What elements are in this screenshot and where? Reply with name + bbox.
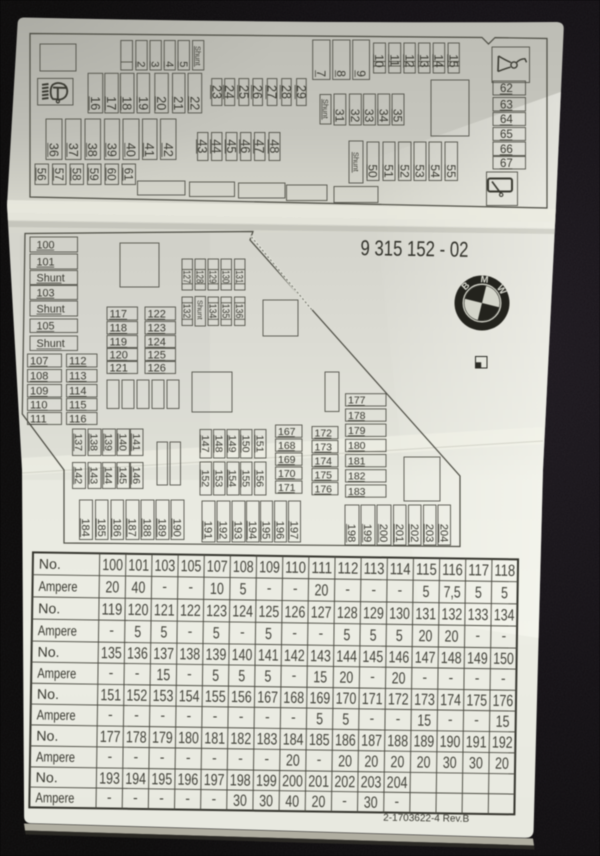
svg-text:186: 186	[335, 731, 356, 749]
svg-text:155: 155	[205, 688, 226, 706]
svg-text:101: 101	[37, 256, 55, 268]
svg-text:188: 188	[387, 732, 408, 750]
svg-text:61: 61	[122, 168, 134, 181]
svg-text:10: 10	[210, 580, 224, 598]
svg-text:118: 118	[110, 323, 128, 335]
svg-text:34: 34	[376, 109, 390, 123]
svg-text:22: 22	[187, 96, 201, 110]
svg-text:175: 175	[466, 691, 487, 709]
svg-text:20: 20	[445, 628, 459, 646]
svg-text:20: 20	[417, 753, 431, 771]
svg-text:171: 171	[278, 482, 296, 494]
svg-text:142: 142	[284, 647, 305, 665]
svg-text:124: 124	[232, 602, 253, 620]
svg-text:-: -	[109, 622, 114, 638]
svg-text:119: 119	[110, 337, 128, 349]
svg-text:-: -	[108, 706, 113, 722]
svg-text:-: -	[134, 706, 139, 722]
svg-text:176: 176	[315, 483, 333, 495]
svg-text:67: 67	[500, 158, 513, 170]
svg-text:Shunt: Shunt	[37, 272, 65, 284]
svg-text:9: 9	[354, 70, 368, 77]
svg-text:-: -	[239, 708, 244, 724]
svg-text:169: 169	[309, 689, 330, 707]
svg-text:136: 136	[233, 304, 245, 319]
svg-text:-: -	[240, 624, 245, 640]
svg-text:-: -	[212, 750, 217, 766]
svg-text:122: 122	[148, 309, 166, 321]
svg-text:167: 167	[278, 426, 296, 438]
svg-text:No.: No.	[39, 556, 61, 572]
svg-text:20: 20	[105, 578, 119, 596]
svg-text:198: 198	[230, 771, 251, 789]
svg-text:-: -	[160, 707, 165, 723]
svg-text:No.: No.	[37, 644, 59, 660]
svg-text:167: 167	[257, 688, 278, 706]
svg-text:5: 5	[370, 626, 377, 644]
svg-text:-: -	[160, 749, 165, 765]
svg-text:130: 130	[389, 605, 410, 623]
svg-text:127: 127	[311, 604, 332, 622]
svg-text:8: 8	[334, 70, 348, 77]
svg-text:110: 110	[285, 559, 306, 577]
svg-text:27: 27	[265, 85, 279, 99]
svg-text:179: 179	[348, 425, 366, 437]
svg-text:144: 144	[336, 647, 357, 665]
svg-text:13: 13	[417, 54, 431, 68]
svg-text:-: -	[317, 751, 322, 767]
svg-text:14: 14	[432, 54, 446, 68]
svg-text:131: 131	[415, 605, 436, 623]
svg-text:112: 112	[69, 356, 87, 368]
svg-text:202: 202	[408, 524, 420, 542]
svg-text:20: 20	[390, 753, 404, 771]
svg-text:180: 180	[178, 729, 199, 747]
svg-text:57: 57	[52, 168, 64, 181]
svg-text:181: 181	[204, 729, 225, 747]
svg-text:20: 20	[495, 755, 509, 773]
svg-text:129: 129	[207, 270, 219, 283]
svg-text:151: 151	[100, 686, 121, 704]
svg-text:-: -	[185, 790, 190, 806]
svg-text:194: 194	[246, 521, 258, 539]
svg-text:123: 123	[206, 602, 227, 620]
svg-text:5: 5	[213, 624, 220, 642]
svg-text:4: 4	[163, 61, 175, 67]
svg-text:5: 5	[316, 710, 323, 728]
svg-text:41: 41	[142, 143, 156, 157]
svg-text:147: 147	[415, 649, 436, 667]
svg-text:130: 130	[220, 270, 232, 283]
svg-text:103: 103	[37, 287, 55, 299]
svg-text:190: 190	[440, 733, 461, 751]
svg-text:39: 39	[105, 143, 119, 157]
svg-text:110: 110	[30, 400, 48, 412]
svg-text:-: -	[107, 789, 112, 805]
svg-text:42: 42	[161, 143, 175, 157]
svg-text:40: 40	[124, 143, 138, 157]
svg-text:178: 178	[126, 728, 147, 746]
svg-text:23: 23	[209, 85, 223, 99]
svg-text:51: 51	[382, 164, 396, 178]
svg-text:-: -	[159, 790, 164, 806]
svg-text:152: 152	[126, 687, 147, 705]
svg-text:30: 30	[259, 792, 273, 810]
svg-text:56: 56	[35, 168, 47, 181]
svg-text:115: 115	[69, 400, 87, 412]
svg-text:135: 135	[101, 644, 122, 662]
svg-text:-: -	[238, 750, 243, 766]
svg-text:200: 200	[282, 772, 303, 790]
svg-text:-: -	[292, 667, 297, 683]
svg-text:7: 7	[314, 70, 328, 77]
svg-text:154: 154	[179, 687, 200, 705]
svg-text:121: 121	[154, 601, 175, 619]
svg-text:180: 180	[348, 440, 366, 452]
svg-text:-: -	[107, 748, 112, 764]
svg-text:50: 50	[366, 164, 380, 178]
svg-text:15: 15	[417, 712, 431, 730]
svg-text:Ampere: Ampere	[35, 789, 74, 806]
svg-text:Shunt: Shunt	[351, 152, 360, 173]
svg-text:194: 194	[125, 770, 146, 788]
svg-text:-: -	[293, 580, 298, 596]
svg-text:202: 202	[334, 773, 355, 791]
svg-text:114: 114	[69, 386, 87, 398]
svg-text:-: -	[188, 579, 193, 595]
svg-text:141: 141	[258, 646, 279, 664]
svg-text:-: -	[267, 580, 272, 596]
svg-text:174: 174	[315, 455, 333, 467]
svg-text:5: 5	[475, 584, 482, 602]
svg-text:38: 38	[85, 143, 99, 157]
svg-text:-: -	[448, 669, 453, 685]
svg-text:117: 117	[468, 561, 489, 579]
svg-text:40: 40	[131, 579, 145, 597]
svg-text:132: 132	[181, 304, 193, 319]
svg-text:20: 20	[339, 669, 353, 687]
svg-text:-: -	[134, 748, 139, 764]
svg-text:37: 37	[66, 143, 80, 157]
svg-text:191: 191	[466, 733, 487, 751]
svg-text:-: -	[162, 578, 167, 594]
svg-text:5: 5	[238, 667, 245, 685]
svg-text:176: 176	[492, 692, 513, 710]
svg-text:12: 12	[402, 54, 416, 68]
svg-text:52: 52	[397, 164, 411, 178]
svg-text:-: -	[448, 711, 453, 727]
svg-text:185: 185	[95, 518, 107, 536]
svg-text:5: 5	[264, 668, 271, 686]
svg-text:123: 123	[148, 323, 166, 335]
svg-text:-: -	[475, 627, 480, 643]
svg-text:184: 184	[283, 731, 304, 749]
svg-text:128: 128	[194, 270, 206, 283]
svg-text:66: 66	[500, 144, 513, 156]
svg-text:-: -	[318, 625, 323, 641]
svg-text:63: 63	[500, 100, 513, 112]
svg-text:Shunt: Shunt	[321, 99, 330, 120]
svg-text:105: 105	[181, 557, 202, 575]
svg-text:-: -	[109, 664, 114, 680]
svg-text:-: -	[501, 670, 506, 686]
svg-text:182: 182	[230, 730, 251, 748]
svg-text:175: 175	[315, 469, 333, 481]
svg-text:148: 148	[441, 649, 462, 667]
svg-text:173: 173	[414, 691, 435, 709]
svg-text:146: 146	[388, 648, 409, 666]
svg-text:172: 172	[388, 690, 409, 708]
svg-text:149: 149	[467, 649, 488, 667]
svg-text:15: 15	[156, 666, 170, 684]
svg-text:15: 15	[446, 54, 460, 68]
svg-text:-: -	[369, 710, 374, 726]
svg-text:124: 124	[148, 337, 166, 349]
svg-text:5: 5	[239, 580, 246, 598]
svg-text:195: 195	[151, 770, 172, 788]
svg-text:135: 135	[220, 304, 232, 319]
svg-text:197: 197	[204, 771, 225, 789]
svg-text:Ampere: Ampere	[38, 622, 77, 639]
svg-text:5: 5	[160, 623, 167, 641]
svg-text:11: 11	[387, 54, 401, 67]
svg-text:-: -	[371, 581, 376, 597]
svg-text:9 315 152 - 02: 9 315 152 - 02	[360, 236, 468, 262]
svg-text:185: 185	[309, 731, 330, 749]
svg-text:-: -	[264, 750, 269, 766]
svg-text:59: 59	[87, 168, 99, 181]
svg-text:132: 132	[441, 605, 462, 623]
svg-text:20: 20	[418, 627, 432, 645]
svg-text:25: 25	[236, 85, 250, 99]
svg-text:45: 45	[224, 139, 238, 153]
svg-text:30: 30	[469, 754, 483, 772]
svg-text:-: -	[135, 665, 140, 681]
svg-text:24: 24	[222, 85, 236, 99]
svg-text:5: 5	[212, 667, 219, 685]
svg-text:-: -	[475, 670, 480, 686]
svg-text:134: 134	[207, 304, 219, 319]
svg-text:170: 170	[336, 690, 357, 708]
svg-text:62: 62	[500, 83, 513, 95]
svg-text:16: 16	[88, 96, 102, 110]
svg-text:Ampere: Ampere	[37, 665, 76, 682]
svg-text:58: 58	[70, 168, 82, 181]
svg-text:118: 118	[494, 562, 515, 580]
svg-text:17: 17	[104, 96, 118, 110]
svg-text:-: -	[213, 708, 218, 724]
svg-text:109: 109	[259, 558, 280, 576]
svg-text:20: 20	[286, 752, 300, 770]
svg-text:136: 136	[127, 644, 148, 662]
svg-text:107: 107	[207, 558, 228, 576]
svg-text:128: 128	[337, 604, 358, 622]
svg-text:Ampere: Ampere	[38, 578, 77, 595]
svg-text:111: 111	[30, 414, 47, 426]
svg-text:21: 21	[171, 96, 185, 110]
svg-text:65: 65	[500, 129, 513, 141]
svg-text:46: 46	[238, 139, 252, 153]
svg-text:113: 113	[364, 560, 385, 578]
svg-text:-: -	[211, 790, 216, 806]
svg-text:107: 107	[30, 356, 48, 368]
svg-text:-: -	[394, 793, 399, 809]
svg-text:137: 137	[153, 645, 174, 663]
svg-text:103: 103	[154, 557, 175, 575]
svg-text:60: 60	[105, 168, 117, 181]
svg-text:126: 126	[284, 603, 305, 621]
svg-text:2-1703622-4 Rev.B: 2-1703622-4 Rev.B	[383, 813, 469, 825]
svg-text:100: 100	[37, 239, 55, 251]
svg-text:183: 183	[257, 730, 278, 748]
svg-text:31: 31	[333, 109, 347, 123]
svg-text:125: 125	[148, 350, 166, 362]
svg-text:127: 127	[181, 270, 193, 283]
svg-text:169: 169	[278, 454, 296, 466]
svg-text:48: 48	[267, 139, 281, 153]
svg-text:20: 20	[154, 96, 168, 110]
svg-text:33: 33	[362, 109, 376, 123]
svg-text:35: 35	[391, 109, 405, 123]
svg-text:101: 101	[128, 556, 149, 574]
svg-text:28: 28	[279, 85, 293, 99]
svg-text:-: -	[265, 708, 270, 724]
svg-text:179: 179	[152, 729, 173, 747]
svg-text:20: 20	[338, 752, 352, 770]
svg-text:No.: No.	[37, 686, 59, 702]
svg-text:20: 20	[364, 753, 378, 771]
svg-text:178: 178	[348, 410, 366, 422]
svg-text:-: -	[342, 792, 347, 808]
svg-text:138: 138	[179, 645, 200, 663]
svg-text:199: 199	[256, 772, 277, 790]
svg-text:122: 122	[180, 602, 201, 620]
svg-text:Shunt: Shunt	[37, 303, 65, 315]
svg-text:5: 5	[342, 710, 349, 728]
svg-text:30: 30	[443, 754, 457, 772]
svg-text:Ampere: Ampere	[36, 748, 75, 765]
svg-text:Ampere: Ampere	[37, 707, 76, 724]
svg-text:20: 20	[314, 581, 328, 599]
svg-text:181: 181	[348, 455, 366, 467]
svg-text:140: 140	[232, 646, 253, 664]
svg-text:5: 5	[422, 583, 429, 601]
svg-text:129: 129	[363, 604, 384, 622]
svg-text:64: 64	[500, 114, 513, 126]
svg-text:189: 189	[413, 732, 434, 750]
svg-text:26: 26	[250, 85, 264, 99]
svg-text:113: 113	[69, 371, 87, 383]
svg-text:183: 183	[348, 486, 366, 498]
svg-text:10: 10	[372, 54, 386, 68]
svg-text:5: 5	[501, 584, 508, 602]
svg-text:156: 156	[231, 688, 252, 706]
svg-text:111: 111	[311, 559, 332, 577]
svg-text:192: 192	[492, 734, 513, 752]
svg-text:120: 120	[110, 350, 128, 362]
svg-text:109: 109	[30, 386, 48, 398]
svg-text:125: 125	[258, 603, 279, 621]
svg-text:-: -	[396, 710, 401, 726]
svg-text:20: 20	[392, 669, 406, 687]
svg-text:182: 182	[348, 471, 366, 483]
svg-text:-: -	[291, 709, 296, 725]
svg-text:204: 204	[387, 774, 408, 792]
svg-text:-: -	[133, 789, 138, 805]
svg-text:55: 55	[444, 164, 458, 178]
svg-text:143: 143	[310, 647, 331, 665]
svg-text:M: M	[480, 274, 489, 286]
svg-text:134: 134	[494, 606, 515, 624]
svg-text:7,5: 7,5	[443, 583, 460, 601]
svg-text:5: 5	[343, 626, 350, 644]
svg-text:187: 187	[361, 732, 382, 750]
svg-text:5: 5	[265, 625, 272, 643]
svg-text:203: 203	[423, 524, 435, 542]
svg-text:47: 47	[252, 139, 266, 153]
svg-text:173: 173	[315, 441, 333, 453]
svg-text:-: -	[345, 581, 350, 597]
svg-text:44: 44	[209, 139, 223, 153]
svg-text:119: 119	[102, 600, 123, 618]
svg-text:54: 54	[428, 164, 442, 178]
svg-text:201: 201	[393, 524, 405, 542]
svg-text:30: 30	[233, 792, 247, 810]
svg-text:116: 116	[442, 561, 463, 579]
svg-text:40: 40	[285, 792, 299, 810]
svg-text:Shunt: Shunt	[37, 338, 65, 350]
svg-text:108: 108	[233, 558, 254, 576]
svg-text:-: -	[474, 711, 479, 727]
svg-text:No.: No.	[36, 769, 58, 785]
svg-text:15: 15	[313, 668, 327, 686]
svg-text:32: 32	[348, 109, 362, 123]
svg-text:No.: No.	[36, 727, 58, 743]
svg-text:116: 116	[69, 414, 87, 426]
svg-text:170: 170	[278, 468, 296, 480]
svg-text:120: 120	[128, 601, 149, 619]
svg-text:133: 133	[468, 606, 489, 624]
svg-text:5: 5	[396, 627, 403, 645]
svg-text:174: 174	[440, 691, 461, 709]
svg-text:139: 139	[205, 646, 226, 664]
svg-text:105: 105	[37, 321, 55, 333]
svg-text:-: -	[501, 627, 506, 643]
svg-text:193: 193	[99, 769, 120, 787]
svg-text:-: -	[186, 707, 191, 723]
svg-text:36: 36	[47, 143, 61, 157]
svg-text:-: -	[397, 582, 402, 598]
svg-text:177: 177	[100, 728, 121, 746]
svg-text:131: 131	[233, 270, 245, 283]
svg-text:126: 126	[148, 363, 166, 375]
svg-text:-: -	[292, 624, 297, 640]
svg-text:153: 153	[153, 687, 174, 705]
svg-text:15: 15	[496, 713, 510, 731]
svg-text:Shunt: Shunt	[194, 46, 203, 67]
svg-text:Shunt: Shunt	[196, 300, 205, 321]
svg-text:172: 172	[315, 427, 333, 439]
svg-text:115: 115	[416, 561, 437, 579]
svg-text:108: 108	[30, 371, 48, 383]
svg-text:-: -	[186, 749, 191, 765]
svg-text:100: 100	[102, 556, 123, 574]
svg-text:-: -	[188, 623, 193, 639]
svg-text:-: -	[370, 668, 375, 684]
svg-text:43: 43	[195, 139, 209, 153]
svg-text:19: 19	[136, 96, 150, 110]
svg-text:201: 201	[308, 772, 329, 790]
